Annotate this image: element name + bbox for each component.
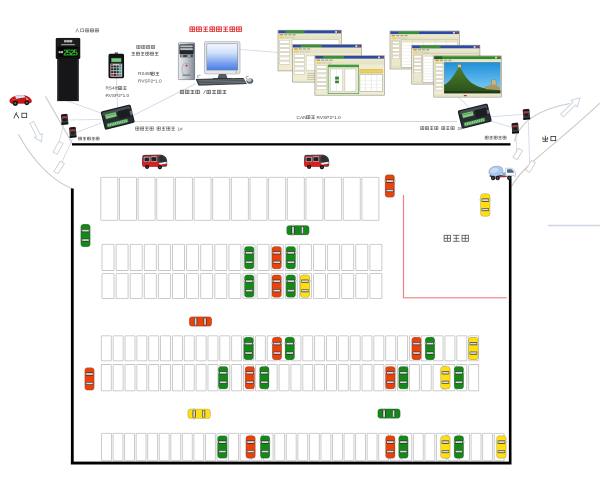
svg-text:1#: 1#	[178, 126, 184, 131]
svg-text:RS485: RS485	[106, 86, 121, 91]
svg-text:RVSP2*1.0: RVSP2*1.0	[317, 115, 342, 121]
svg-text:RS485: RS485	[138, 71, 153, 76]
svg-text:RVSP2*1.0: RVSP2*1.0	[138, 79, 162, 84]
svg-text:CAN: CAN	[297, 115, 308, 121]
svg-text:2525: 2525	[63, 49, 78, 58]
svg-text:2#: 2#	[458, 126, 464, 131]
svg-text:RVSP2*1.0: RVSP2*1.0	[106, 93, 130, 98]
